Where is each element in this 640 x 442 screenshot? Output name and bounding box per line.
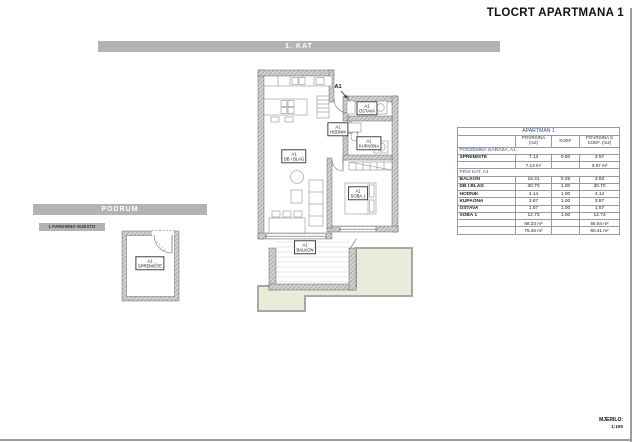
first-floor-label: 1. KAT [285, 43, 313, 50]
table-row: 75.46 m²60.41 m² [458, 227, 620, 234]
room-name-cell: SPREMIŠTE [458, 154, 516, 161]
room-label-name: KUPAONA [359, 143, 379, 148]
table-cell [552, 220, 580, 227]
table-cell [458, 227, 516, 234]
entry-unit-label: A1 [334, 84, 341, 90]
subtotal-area-cell: 68.33 m² [516, 220, 552, 227]
section-bar-first-floor: 1. KAT [98, 41, 500, 52]
area-koef-cell: 1.57 [580, 205, 620, 212]
section-header: PRVI KAT, A1 [458, 169, 620, 176]
total-area-koef-cell: 60.41 m² [580, 227, 620, 234]
room-name-cell: HODNIK [458, 191, 516, 198]
table-row: PRVI KAT, A1 [458, 169, 620, 176]
area-koef-cell: 4.14 [580, 191, 620, 198]
table-row: PODZEMNA GARAŽA, A1 [458, 147, 620, 154]
table-row: 7.13 m²3.57 m² [458, 162, 620, 169]
col-header: POVRŠINA S KOEF. (m2) [580, 135, 620, 147]
table-row: POVRŠINA (m2)KOEFPOVRŠINA S KOEF. (m2) [458, 135, 620, 147]
room-name-cell: BALKON [458, 176, 516, 183]
area-cell: 12.73 [516, 212, 552, 219]
room-label-dnevni: A1 DB I BLAG [281, 149, 306, 163]
area-cell: 1.57 [516, 205, 552, 212]
room-name-cell: SOBA 1 [458, 212, 516, 219]
room-label-soba: A1 SOBA 1 [348, 186, 368, 200]
room-name-cell: OSTAVA [458, 205, 516, 212]
table-row: HODNIK4.141.004.14 [458, 191, 620, 198]
table-row: BALKON15.310.253.83 [458, 176, 620, 183]
scale-value: 1:100 [599, 424, 623, 430]
drawing-sheet: TLOCRT APARTMANA 1 1. KAT PODRUM 1 PARKI… [0, 0, 640, 442]
scale-label: MJERILO: [599, 417, 623, 424]
room-label-hodnik: A1 HODNIK [327, 122, 348, 136]
koef-cell: 1.00 [552, 198, 580, 205]
area-koef-cell: 3.57 [580, 154, 620, 161]
room-label-name: OSTAVA [359, 108, 375, 113]
area-koef-cell: 12.73 [580, 212, 620, 219]
scale-block: MJERILO: 1:100 [599, 417, 623, 430]
table-row: APARTMAN 1 [458, 128, 620, 136]
area-koef-cell: 3.83 [580, 176, 620, 183]
koef-cell: 1.00 [552, 183, 580, 190]
room-label-balkon: A1 BALKON [294, 240, 316, 254]
area-cell: 3.87 [516, 198, 552, 205]
sheet-title: TLOCRT APARTMANA 1 [487, 7, 624, 19]
area-table: APARTMAN 1POVRŠINA (m2)KOEFPOVRŠINA S KO… [457, 127, 620, 235]
area-cell: 30.70 [516, 183, 552, 190]
area-cell: 15.31 [516, 176, 552, 183]
subtotal-area-cell: 7.13 m² [516, 162, 552, 169]
room-label-name: SPREMIŠTE [138, 263, 162, 268]
table-row: OSTAVA1.571.001.57 [458, 205, 620, 212]
table-row: KUPAONA3.871.003.87 [458, 198, 620, 205]
sheet-edge-bottom [0, 439, 631, 441]
area-cell: 4.14 [516, 191, 552, 198]
table-cell [552, 227, 580, 234]
area-koef-cell: 30.70 [580, 183, 620, 190]
table-title: APARTMAN 1 [458, 128, 620, 136]
room-label-spremiste: A1 SPREMIŠTE [135, 256, 164, 270]
room-label-name: HODNIK [330, 129, 346, 134]
col-header: KOEF [552, 135, 580, 147]
table-row: 68.33 m²56.84 m² [458, 220, 620, 227]
table-row: SPREMIŠTE7.130.503.57 [458, 154, 620, 161]
subtotal-area-koef-cell: 56.84 m² [580, 220, 620, 227]
green-landscape [258, 248, 412, 311]
koef-cell: 1.00 [552, 191, 580, 198]
total-area-cell: 75.46 m² [516, 227, 552, 234]
table-cell [458, 162, 516, 169]
parking-label: 1 PARKIRNO MJESTO [48, 224, 95, 229]
area-koef-cell: 3.87 [580, 198, 620, 205]
table-cell [458, 220, 516, 227]
room-label-name: SOBA 1 [351, 193, 366, 198]
room-label-ostava: A1 OSTAVA [356, 101, 377, 115]
table-row: SOBA 112.731.0012.73 [458, 212, 620, 219]
room-label-name: DB I BLAG [284, 156, 304, 161]
table-cell [458, 135, 516, 147]
room-name-cell: DB I BLAG [458, 183, 516, 190]
room-name-cell: KUPAONA [458, 198, 516, 205]
koef-cell: 0.50 [552, 154, 580, 161]
koef-cell: 1.00 [552, 212, 580, 219]
area-cell: 7.13 [516, 154, 552, 161]
room-label-name: BALKON [297, 247, 314, 252]
parking-spot-bar: 1 PARKIRNO MJESTO [39, 223, 105, 231]
basement-label: PODRUM [101, 206, 138, 213]
koef-cell: 1.00 [552, 205, 580, 212]
table-row: DB I BLAG30.701.0030.70 [458, 183, 620, 190]
sheet-edge-right [630, 8, 632, 442]
subtotal-area-koef-cell: 3.57 m² [580, 162, 620, 169]
section-bar-basement: PODRUM [33, 204, 207, 215]
table-cell [552, 162, 580, 169]
col-header: POVRŠINA (m2) [516, 135, 552, 147]
room-label-kupaona: A1 KUPAONA [356, 136, 381, 150]
koef-cell: 0.25 [552, 176, 580, 183]
section-header: PODZEMNA GARAŽA, A1 [458, 147, 620, 154]
